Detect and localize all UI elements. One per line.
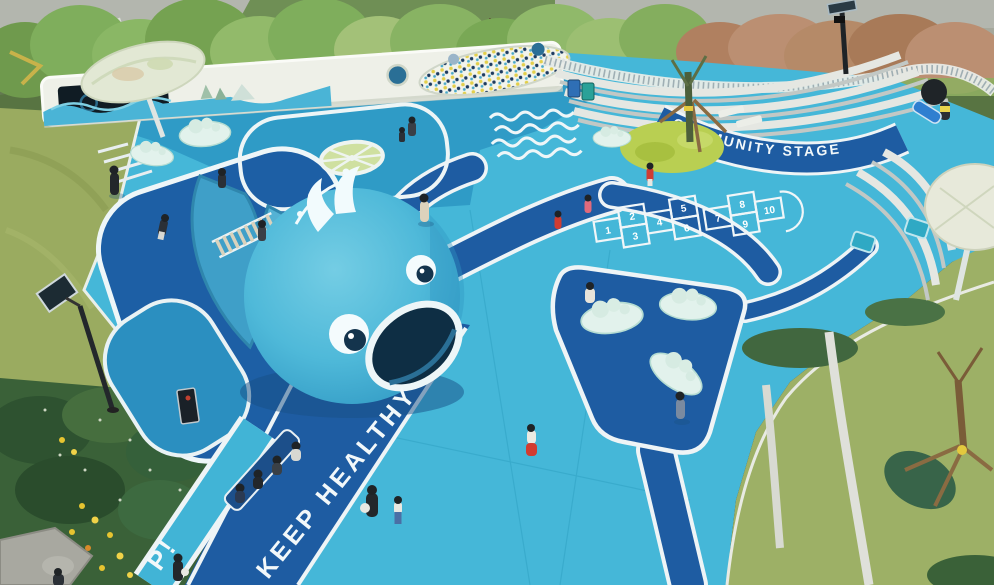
porthole-icon xyxy=(387,64,408,85)
hopscotch-number: 10 xyxy=(763,205,776,218)
sign-post xyxy=(177,388,200,424)
playground-aerial-photo: COMMUNITY STAGE 1 2 3 xyxy=(0,0,994,585)
